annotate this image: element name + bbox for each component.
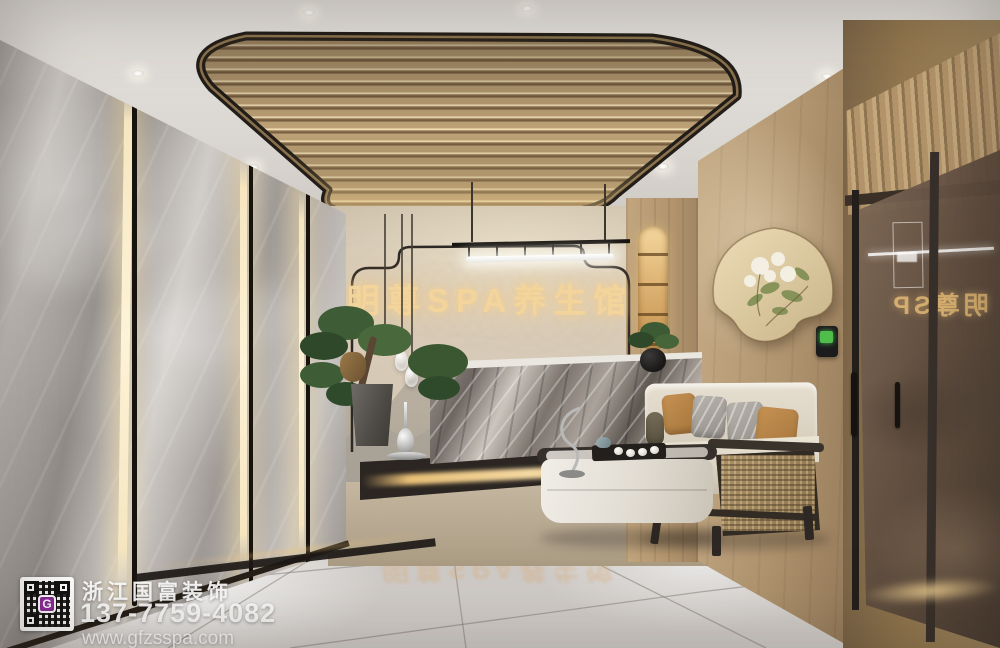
bonsai-foliage xyxy=(408,344,468,380)
watermark-phone-number: 137-7759-4082 xyxy=(80,598,276,629)
droplet-sculpture-base xyxy=(387,452,427,460)
table-sculpture xyxy=(548,404,592,480)
bronze-vessel xyxy=(340,352,366,382)
pendant-wire xyxy=(384,214,386,330)
sofa-pillow xyxy=(691,395,728,439)
spa-reception-interior: 明尊SPA养生馆 明尊SPA养生馆 xyxy=(0,0,1000,648)
sofa-bolster-pillow xyxy=(646,412,664,446)
wall-divider-bar xyxy=(249,143,253,583)
device-screen xyxy=(820,331,833,343)
tea-cup xyxy=(638,448,647,456)
watermark-website-url: www.gfzsspa.com xyxy=(82,628,234,648)
light-suspension-wire xyxy=(604,184,606,242)
droplet-sculpture xyxy=(397,428,414,454)
glass-sign-reflection-text: 明尊SP xyxy=(880,286,998,322)
bonsai-foliage xyxy=(418,376,460,400)
wall-divider-bar xyxy=(132,66,137,606)
door-handle xyxy=(851,372,857,436)
access-control-panel xyxy=(816,326,838,357)
door-handle xyxy=(895,382,900,428)
bonsai-vase xyxy=(640,348,666,372)
bonsai-foliage xyxy=(628,332,654,348)
teapot xyxy=(596,437,611,448)
qr-code-icon: G xyxy=(20,577,74,631)
bonsai-foliage xyxy=(655,334,679,349)
light-suspension-wire xyxy=(471,182,473,242)
bonsai-foliage xyxy=(300,332,348,360)
glass-reflection-sign xyxy=(897,252,917,262)
pendant-wire xyxy=(411,214,413,368)
table-shadow xyxy=(540,528,725,548)
tea-cup xyxy=(626,449,635,457)
tea-cup xyxy=(614,447,623,455)
company-logo-icon: G xyxy=(38,595,56,613)
tea-cup xyxy=(650,446,659,454)
led-light-strip xyxy=(240,145,247,577)
